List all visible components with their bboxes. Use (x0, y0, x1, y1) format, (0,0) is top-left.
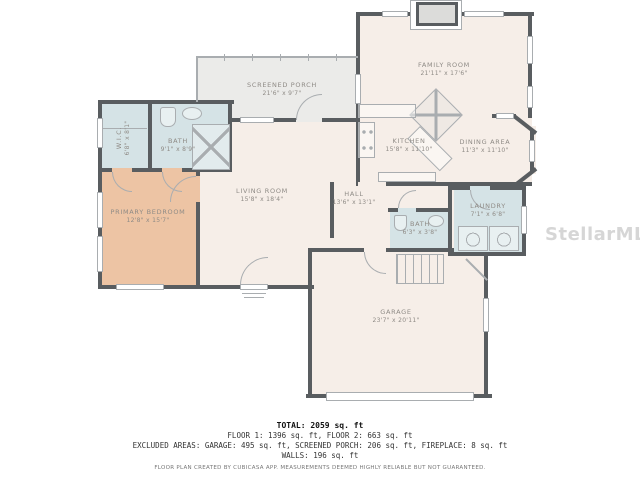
wall-wic-bath-top (98, 100, 234, 104)
stove (358, 122, 375, 158)
footer-disclaimer: FLOOR PLAN CREATED BY CUBICASA APP. MEAS… (0, 465, 640, 471)
window (97, 118, 103, 148)
window (97, 192, 103, 228)
window (97, 236, 103, 272)
room-label-bath-hall: BATH 6'3" x 3'8" (403, 220, 438, 238)
entry-step (242, 293, 266, 294)
watermark: StellarMLS (545, 224, 640, 245)
door-opening (398, 208, 416, 212)
porch-screen-top (196, 56, 358, 58)
room-label-garage: GARAGE 23'7" x 20'11" (372, 308, 419, 326)
porch-screen-left (196, 56, 198, 102)
window (521, 206, 527, 234)
porch-post (308, 54, 309, 61)
room-label-living-room: LIVING ROOM 15'8" x 18'4" (236, 187, 288, 205)
window (464, 11, 504, 17)
kitchen-peninsula (378, 172, 436, 182)
room-label-dining-area: DINING AREA 11'3" x 11'10" (460, 138, 511, 156)
window (382, 11, 408, 17)
room-living-b (200, 172, 234, 287)
footer-floors: FLOOR 1: 1396 sq. ft, FLOOR 2: 663 sq. f… (0, 431, 640, 440)
room-label-wic: W.I.C. 6'8" x 8'1" (115, 121, 133, 156)
footer-walls: WALLS: 196 sq. ft (0, 451, 640, 460)
porch-post (336, 54, 337, 61)
porch-post (224, 54, 225, 61)
room-label-primary-bedroom: PRIMARY BEDROOM 12'8" x 15'7" (111, 208, 186, 226)
footer: TOTAL: 2059 sq. ft FLOOR 1: 1396 sq. ft,… (0, 421, 640, 471)
washer (458, 226, 488, 251)
room-label-bath-primary: BATH 9'1" x 8'9" (161, 137, 196, 155)
wall-garage-left (308, 248, 312, 398)
window (496, 113, 514, 119)
chimney (416, 2, 458, 26)
opening-kitchen-hall (358, 182, 386, 186)
kitchen-counter (358, 104, 416, 118)
footer-total: TOTAL: 2059 sq. ft (0, 421, 640, 430)
porch-post (280, 54, 281, 61)
window (529, 140, 535, 162)
room-label-laundry: LAUNDRY 7'1" x 6'8" (470, 202, 506, 220)
entry-step (244, 297, 264, 298)
bath-sink (182, 107, 202, 120)
porch-post (252, 54, 253, 61)
room-label-screened-porch: SCREENED PORCH 21'6" x 9'7" (247, 81, 317, 99)
window (240, 117, 274, 123)
dryer (489, 226, 519, 251)
window (483, 298, 489, 332)
footer-excluded-areas: EXCLUDED AREAS: GARAGE: 495 sq. ft, SCRE… (0, 441, 640, 450)
wall-bath2-laundry (448, 186, 452, 256)
window (527, 36, 533, 64)
room-label-family-room: FAMILY ROOM 21'11" x 17'6" (418, 61, 470, 79)
window (116, 284, 164, 290)
floor-plan: FAMILY ROOM 21'11" x 17'6" SCREENED PORC… (0, 0, 640, 480)
door-opening (196, 176, 200, 202)
wall-laundry-bottom (450, 252, 526, 256)
shower (192, 124, 230, 170)
window (527, 86, 533, 108)
toilet (160, 107, 176, 127)
room-label-hall: HALL 13'6" x 13'1" (333, 190, 376, 208)
window (355, 74, 361, 104)
stairs (396, 254, 444, 284)
garage-door (326, 392, 474, 401)
room-label-kitchen: KITCHEN 15'8" x 11'10" (385, 137, 432, 155)
wall-wic-bath-divider (148, 100, 152, 170)
